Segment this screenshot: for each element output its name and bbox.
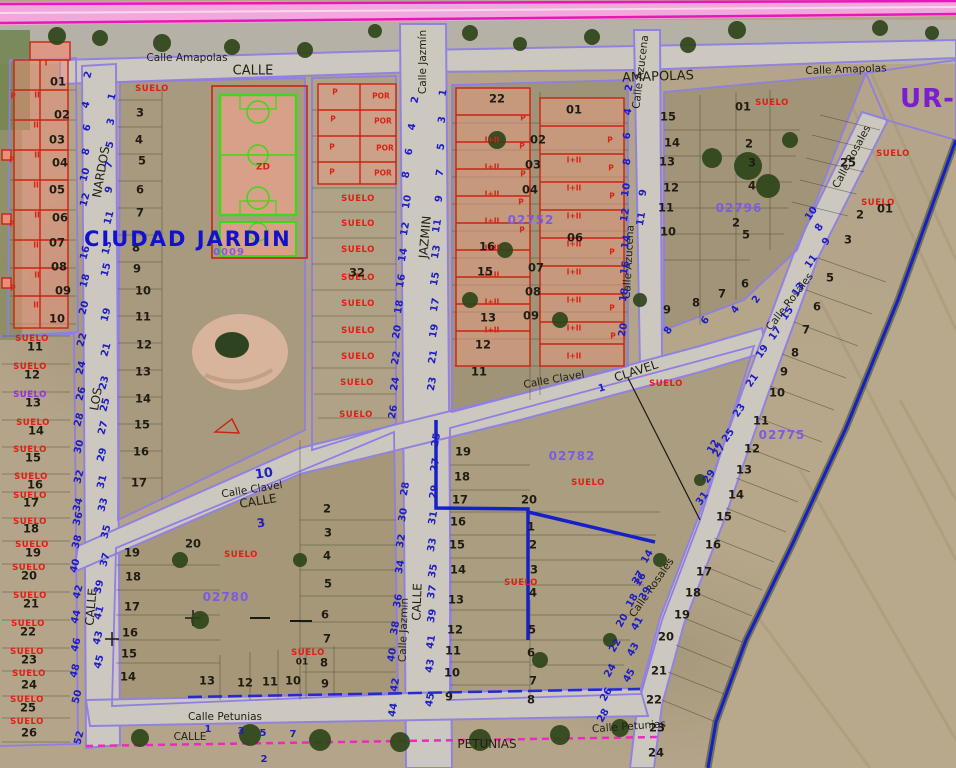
street-jazmin: [400, 24, 452, 768]
magenta-boundary: [86, 737, 660, 746]
district-title: CIUDAD JARDIN: [84, 227, 292, 251]
map-scene: [0, 0, 956, 768]
sector-title: UR-R: [900, 84, 956, 114]
street-azucena: [634, 30, 662, 368]
cadastral-map: Calle AmapolasCALLECalle JazmínAMAPOLASC…: [0, 0, 956, 768]
playground: [192, 314, 288, 390]
